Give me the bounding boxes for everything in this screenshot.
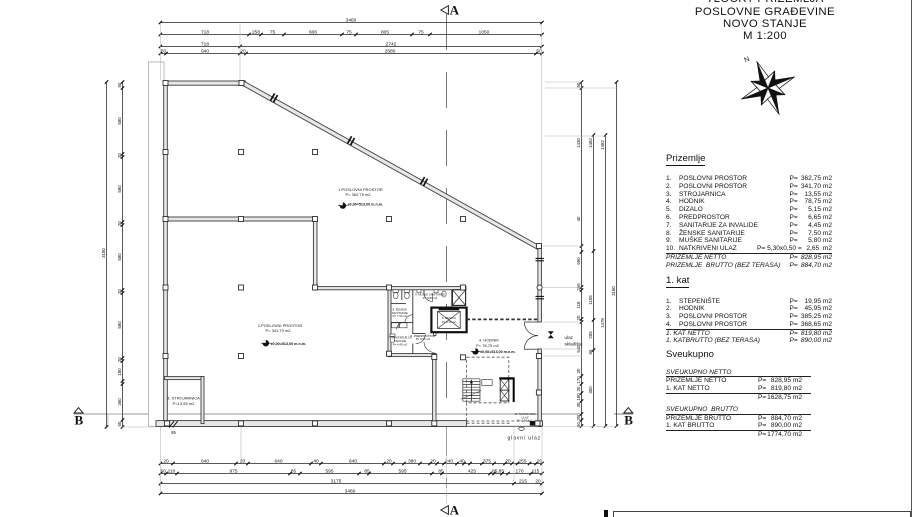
svg-text:3180: 3180 [611,286,616,296]
svg-text:P= 4,45 m2: P= 4,45 m2 [393,342,408,346]
svg-text:P= 5,80 m2: P= 5,80 m2 [423,296,438,300]
svg-text:640: 640 [201,48,209,54]
svg-text:20: 20 [117,153,122,158]
svg-text:425: 425 [468,468,476,474]
svg-text:50: 50 [576,82,581,87]
svg-text:75: 75 [346,29,352,35]
svg-text:360: 360 [117,398,122,406]
svg-text:805: 805 [381,29,389,35]
svg-text:95: 95 [171,430,176,435]
svg-text:255: 255 [576,283,581,291]
svg-text:P= 341,70 m2: P= 341,70 m2 [265,328,291,333]
svg-text:20: 20 [535,478,541,484]
svg-text:20: 20 [576,315,581,320]
svg-text:50: 50 [576,422,581,427]
svg-text:650: 650 [576,257,581,265]
svg-text:ulaz: ulaz [565,335,574,340]
svg-text:2680: 2680 [385,48,396,54]
svg-text:1482: 1482 [600,140,605,150]
svg-text:200: 200 [576,413,581,421]
svg-text:30: 30 [576,368,581,373]
svg-text:85,85: 85,85 [492,468,504,474]
svg-text:glavni ulaz: glavni ulaz [508,436,542,442]
svg-text:115: 115 [532,468,540,474]
svg-text:50: 50 [117,82,122,87]
svg-text:40: 40 [576,216,581,221]
svg-text:400: 400 [588,386,593,394]
svg-text:20: 20 [240,48,246,54]
svg-text:P= 2,30 m2: P= 2,30 m2 [517,419,532,423]
svg-text:75: 75 [418,29,424,35]
svg-text:3180: 3180 [101,248,106,258]
svg-text:975: 975 [229,468,237,474]
svg-text:20: 20 [430,458,436,464]
svg-text:A: A [450,503,460,517]
svg-text:20: 20 [386,458,392,464]
svg-text:3175: 3175 [331,478,342,484]
svg-text:170: 170 [515,468,523,474]
svg-text:1478: 1478 [600,318,605,328]
svg-text:75: 75 [270,29,276,35]
svg-text:±0,00=513,00 m.n.m.: ±0,00=513,00 m.n.m. [480,350,516,354]
svg-text:580: 580 [117,117,122,125]
svg-text:85: 85 [364,468,370,474]
svg-text:640: 640 [349,458,357,464]
svg-text:50: 50 [536,48,542,54]
svg-text:718: 718 [201,41,209,47]
svg-text:20: 20 [505,458,511,464]
svg-text:258: 258 [252,29,260,35]
svg-text:30: 30 [576,402,581,407]
svg-text:540: 540 [576,345,581,353]
svg-text:P=13,55 m2: P=13,55 m2 [173,401,195,406]
svg-text:85: 85 [588,349,593,354]
svg-text:50: 50 [117,421,122,426]
svg-text:85: 85 [291,468,297,474]
svg-text:P= 362,75 m2: P= 362,75 m2 [345,192,371,197]
svg-text:580: 580 [117,321,122,329]
svg-text:1430: 1430 [576,138,581,148]
svg-text:1482: 1482 [588,138,593,148]
svg-text:B: B [75,413,84,428]
svg-text:1050: 1050 [479,29,490,35]
svg-text:P= 6,65 m2: P= 6,65 m2 [416,337,431,341]
svg-text:40: 40 [313,458,319,464]
svg-text:718: 718 [201,29,209,35]
svg-text:255: 255 [588,331,593,339]
svg-text:110: 110 [168,468,176,474]
svg-text:20: 20 [117,357,122,362]
svg-text:118: 118 [576,301,581,309]
svg-text:375: 375 [483,458,491,464]
svg-text:180: 180 [117,368,122,376]
svg-text:2742: 2742 [386,41,397,47]
svg-text:595: 595 [325,468,333,474]
svg-text:85: 85 [438,468,444,474]
svg-text:50: 50 [161,48,167,54]
svg-text:40: 40 [459,458,465,464]
svg-text:P= 5,15 m2: P= 5,15 m2 [442,320,456,324]
svg-text:240: 240 [445,458,453,464]
svg-text:50: 50 [160,468,166,474]
svg-text:170: 170 [576,376,581,384]
svg-text:606: 606 [309,29,317,35]
svg-text:20: 20 [163,458,169,464]
svg-text:P= 78,75 m2: P= 78,75 m2 [476,343,500,348]
svg-text:±0,00=513,00 m.n.m.: ±0,00=513,00 m.n.m. [271,342,307,346]
svg-text:3. STROJARNICA: 3. STROJARNICA [167,396,200,401]
svg-text:±0,00=513,00 m.n.m.: ±0,00=513,00 m.n.m. [348,202,384,206]
svg-text:595: 595 [398,468,406,474]
svg-text:P= 7,50 m2: P= 7,50 m2 [393,314,408,318]
svg-text:640: 640 [274,458,282,464]
svg-text:20: 20 [117,289,122,294]
svg-text:255: 255 [518,458,526,464]
svg-text:20: 20 [240,458,246,464]
svg-text:580: 580 [117,185,122,193]
svg-text:5. DIZALO: 5. DIZALO [442,316,457,320]
svg-text:B: B [624,413,633,428]
svg-text:580: 580 [117,253,122,261]
svg-text:20: 20 [117,221,122,226]
svg-text:N: N [743,56,750,64]
svg-text:A: A [450,3,460,18]
svg-text:1105: 1105 [588,295,593,305]
svg-text:380: 380 [408,458,416,464]
svg-text:3460: 3460 [345,488,356,494]
svg-text:20: 20 [537,458,543,464]
svg-text:4. HODNIK: 4. HODNIK [479,338,499,343]
svg-text:640: 640 [201,458,209,464]
svg-text:3460: 3460 [346,17,357,23]
svg-text:30: 30 [576,386,581,391]
svg-text:180: 180 [576,393,581,401]
svg-text:215: 215 [519,478,527,484]
